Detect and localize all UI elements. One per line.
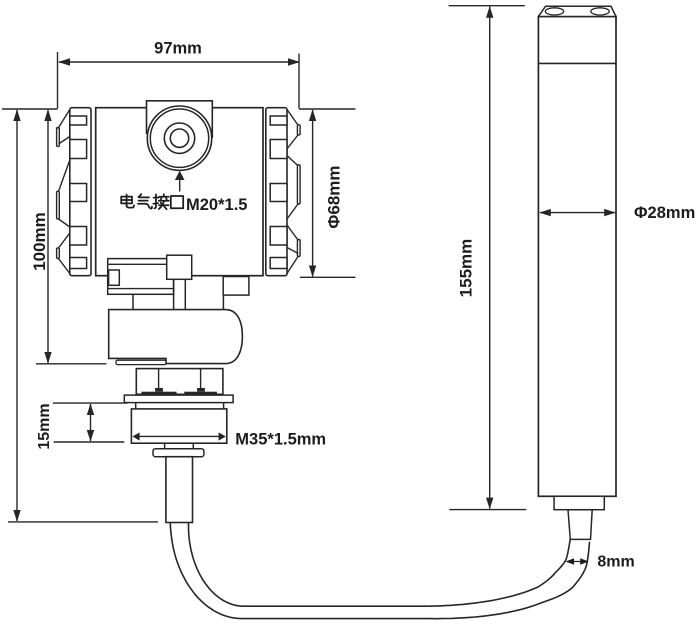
- svg-text:Φ68mm: Φ68mm: [325, 165, 344, 228]
- svg-text:Φ28mm: Φ28mm: [634, 204, 695, 222]
- svg-text:155mm: 155mm: [456, 239, 475, 298]
- svg-text:M20*1.5: M20*1.5: [186, 196, 247, 214]
- svg-text:8mm: 8mm: [597, 554, 634, 571]
- svg-text:15mm: 15mm: [36, 403, 53, 449]
- svg-text:M35*1.5mm: M35*1.5mm: [235, 431, 326, 449]
- svg-text:100mm: 100mm: [30, 212, 49, 271]
- svg-text:97mm: 97mm: [154, 40, 202, 58]
